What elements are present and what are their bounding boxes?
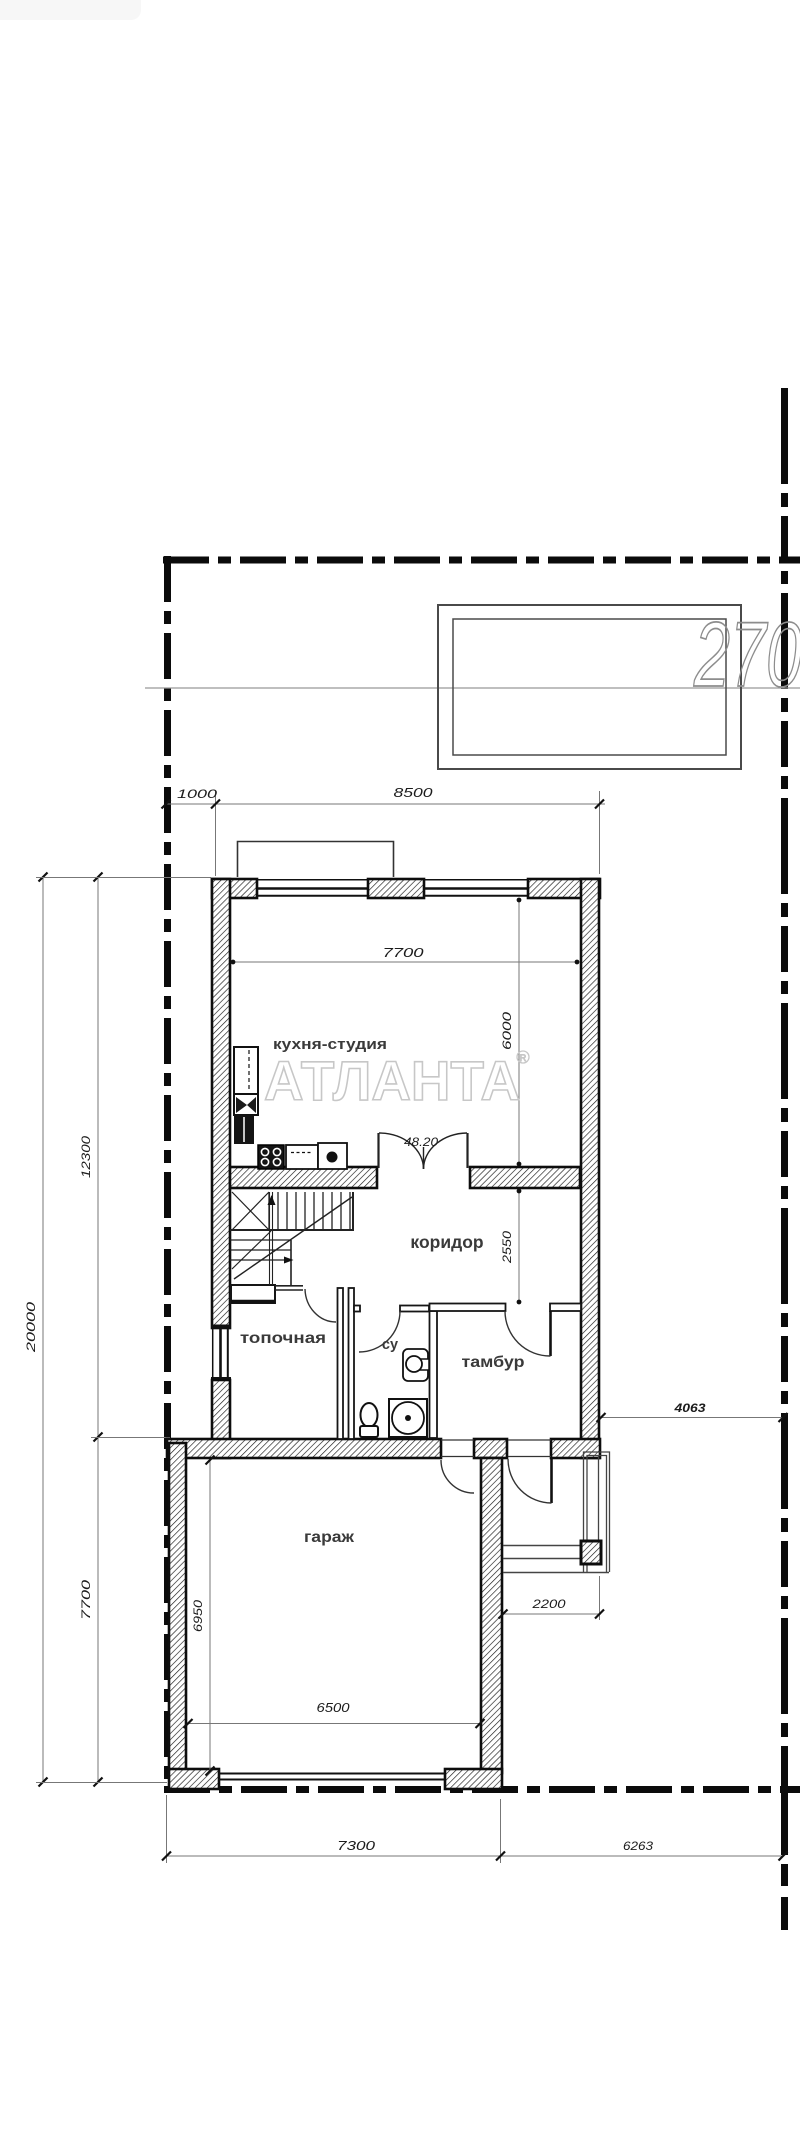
svg-text:гараж: гараж [304,1529,355,1546]
svg-text:6263: 6263 [623,1839,653,1853]
svg-text:48.20: 48.20 [404,1135,438,1149]
svg-text:7700: 7700 [79,1580,93,1620]
svg-text:2200: 2200 [531,1597,566,1611]
svg-text:су: су [382,1337,398,1353]
svg-text:7700: 7700 [383,945,425,960]
svg-text:R: R [520,1053,527,1063]
svg-text:6950: 6950 [191,1600,205,1632]
svg-text:270: 270 [693,604,800,706]
svg-text:2550: 2550 [500,1231,514,1265]
svg-text:топочная: топочная [240,1330,326,1347]
svg-text:1000: 1000 [177,787,217,801]
svg-text:АТЛАНТА: АТЛАНТА [264,1049,520,1112]
svg-text:20000: 20000 [24,1302,38,1354]
svg-text:6000: 6000 [500,1012,514,1050]
svg-text:4063: 4063 [673,1401,706,1415]
svg-text:12300: 12300 [79,1136,93,1178]
svg-text:тамбур: тамбур [462,1354,525,1371]
svg-text:8500: 8500 [394,785,434,800]
svg-text:коридор: коридор [410,1232,483,1252]
svg-text:7300: 7300 [337,1838,376,1853]
svg-text:6500: 6500 [317,1700,351,1715]
